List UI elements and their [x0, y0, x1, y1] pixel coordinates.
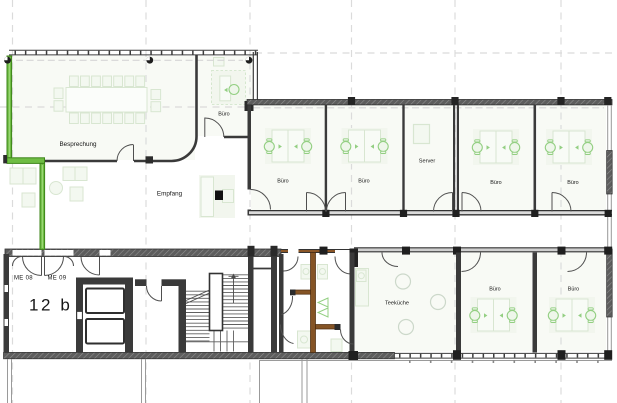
- svg-text:Büro: Büro: [568, 287, 579, 293]
- svg-text:Teeküche: Teeküche: [385, 301, 409, 307]
- svg-text:Büro: Büro: [490, 180, 501, 186]
- svg-text:12 b: 12 b: [29, 296, 73, 315]
- svg-text:ME 09: ME 09: [48, 276, 67, 282]
- svg-text:Büro: Büro: [277, 179, 288, 185]
- svg-text:Büro: Büro: [218, 112, 229, 118]
- svg-text:Büro: Büro: [489, 287, 500, 293]
- svg-text:Büro: Büro: [358, 179, 369, 185]
- svg-text:ME 08: ME 08: [14, 276, 33, 282]
- svg-text:Büro: Büro: [567, 180, 578, 186]
- svg-text:Besprechung: Besprechung: [59, 141, 97, 148]
- svg-text:Server: Server: [419, 159, 436, 165]
- svg-text:Empfang: Empfang: [157, 191, 183, 198]
